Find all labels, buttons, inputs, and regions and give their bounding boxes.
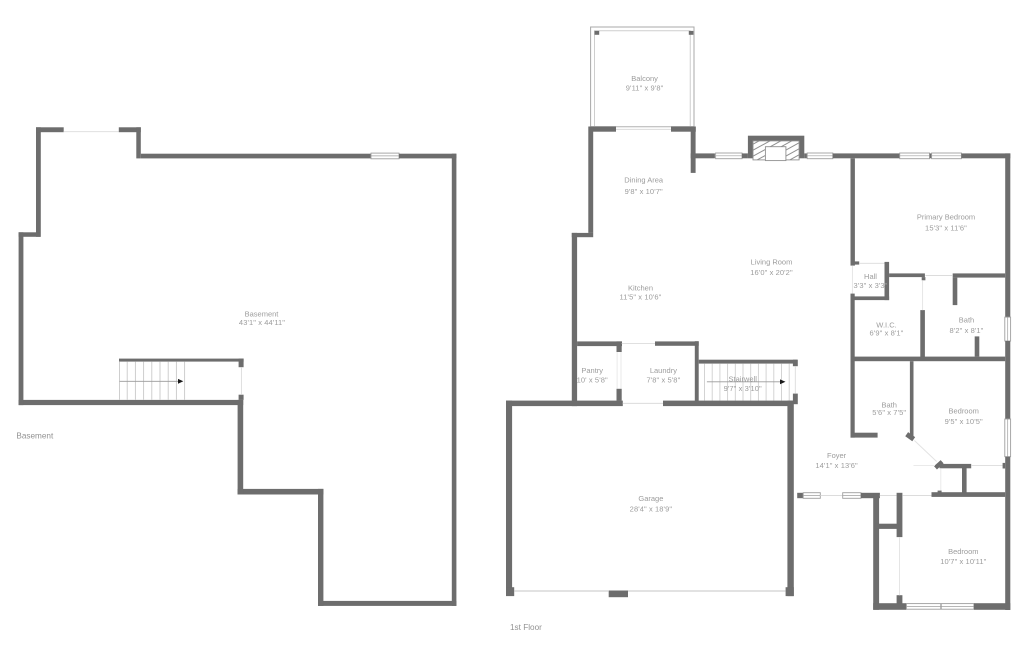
svg-text:8'2" x 8'1": 8'2" x 8'1" (950, 326, 984, 335)
svg-text:7'8" x 5'8": 7'8" x 5'8" (646, 375, 680, 384)
svg-text:Balcony: Balcony (631, 74, 658, 83)
svg-text:6'9" x 8'1": 6'9" x 8'1" (870, 328, 904, 337)
svg-text:Kitchen: Kitchen (628, 283, 653, 292)
svg-text:15'3" x 11'6": 15'3" x 11'6" (925, 224, 967, 233)
svg-text:9'5" x 10'5": 9'5" x 10'5" (945, 417, 983, 426)
svg-text:9'8" x 10'7": 9'8" x 10'7" (625, 187, 663, 196)
svg-text:Living Room: Living Room (751, 258, 793, 267)
svg-text:10'7" x 10'11": 10'7" x 10'11" (940, 557, 986, 566)
svg-text:Hall: Hall (864, 272, 877, 281)
svg-text:Stairwell: Stairwell (729, 374, 758, 383)
svg-text:43'1" x 44'11": 43'1" x 44'11" (239, 318, 285, 327)
svg-text:Pantry: Pantry (581, 366, 603, 375)
svg-text:Basement: Basement (16, 432, 54, 441)
svg-text:11'5" x 10'6": 11'5" x 10'6" (620, 293, 662, 302)
svg-text:5'6" x 7'5": 5'6" x 7'5" (872, 408, 906, 417)
svg-text:Dining Area: Dining Area (624, 175, 664, 184)
svg-text:Garage: Garage (638, 494, 663, 503)
svg-text:Foyer: Foyer (827, 451, 847, 460)
svg-text:14'1" x 13'6": 14'1" x 13'6" (815, 461, 858, 470)
svg-text:9'7" x 3'10": 9'7" x 3'10" (724, 384, 762, 393)
svg-text:3'3" x 3'3": 3'3" x 3'3" (854, 281, 888, 290)
svg-text:Basement: Basement (245, 310, 280, 319)
svg-text:1st Floor: 1st Floor (510, 623, 542, 632)
svg-text:9'11" x 9'8": 9'11" x 9'8" (626, 84, 664, 93)
svg-text:Primary Bedroom: Primary Bedroom (917, 213, 975, 222)
svg-text:28'4" x 18'9": 28'4" x 18'9" (630, 504, 673, 513)
svg-text:16'0" x 20'2": 16'0" x 20'2" (750, 268, 793, 277)
svg-text:10' x 5'8": 10' x 5'8" (577, 375, 608, 384)
svg-text:Bedroom: Bedroom (948, 407, 978, 416)
svg-text:Bedroom: Bedroom (948, 547, 978, 556)
svg-text:Bath: Bath (959, 315, 974, 324)
svg-text:Laundry: Laundry (650, 366, 677, 375)
